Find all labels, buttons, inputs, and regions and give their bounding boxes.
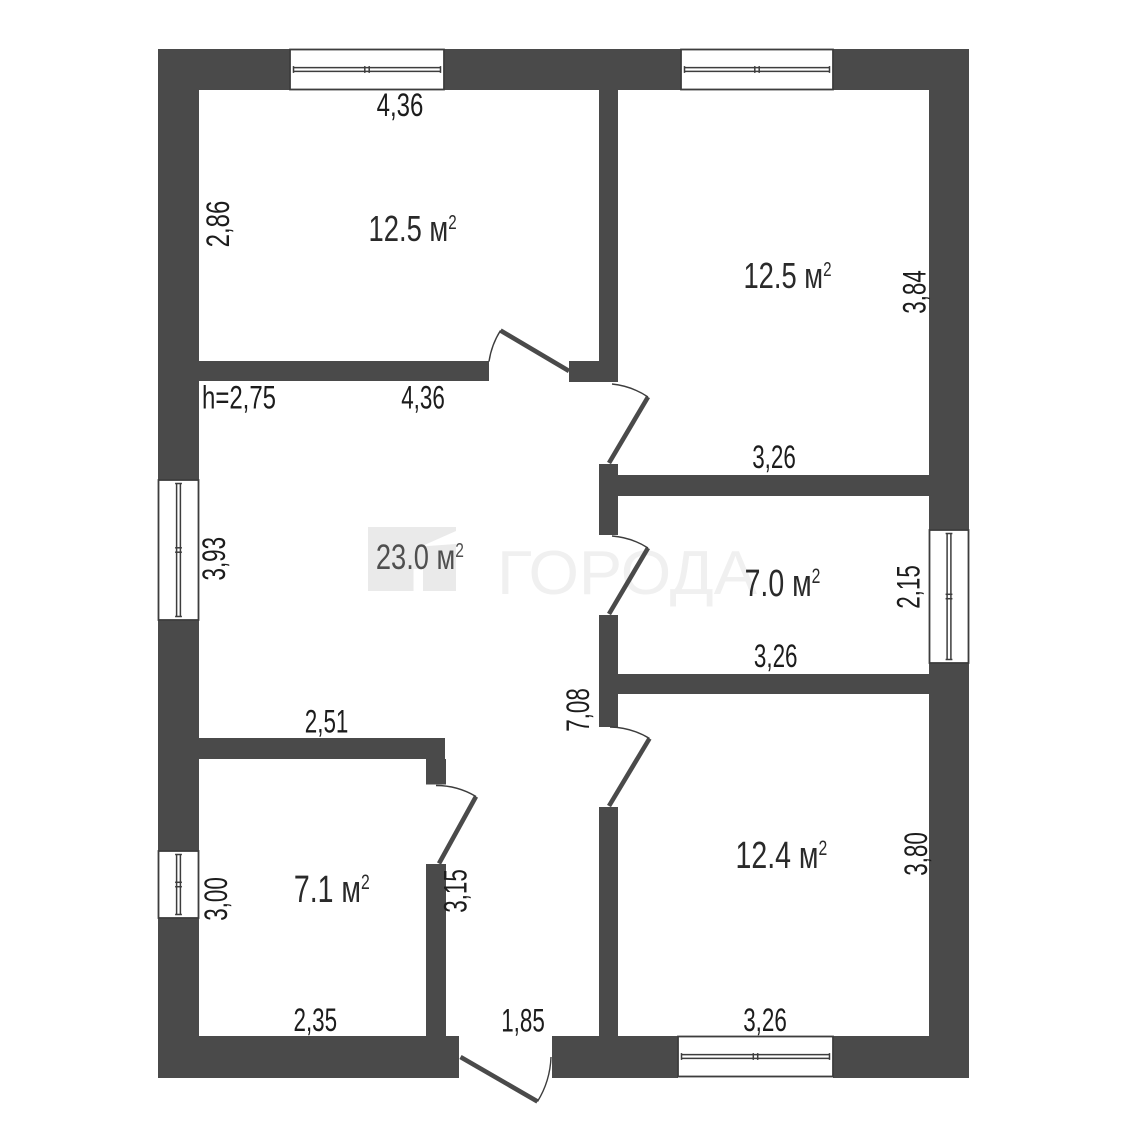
svg-text:12.4 м2: 12.4 м2 — [736, 835, 828, 877]
svg-text:3,26: 3,26 — [754, 638, 798, 674]
svg-text:23.0 м2: 23.0 м2 — [376, 538, 464, 577]
svg-text:7.0 м2: 7.0 м2 — [745, 563, 821, 605]
svg-text:3,93: 3,93 — [196, 537, 232, 581]
svg-text:3,15: 3,15 — [438, 869, 474, 913]
svg-text:7,08: 7,08 — [560, 688, 596, 732]
svg-text:ГОРОДА: ГОРОДА — [497, 539, 758, 608]
svg-text:1,85: 1,85 — [501, 1003, 545, 1039]
svg-text:2,51: 2,51 — [305, 704, 349, 740]
svg-text:2,86: 2,86 — [200, 201, 236, 248]
svg-text:12.5 м2: 12.5 м2 — [743, 255, 831, 296]
svg-text:3,80: 3,80 — [898, 832, 934, 876]
svg-text:12.5 м2: 12.5 м2 — [369, 208, 457, 249]
svg-text:2,15: 2,15 — [891, 565, 927, 609]
svg-text:3,84: 3,84 — [897, 270, 933, 314]
svg-text:3,00: 3,00 — [198, 877, 234, 921]
svg-text:3,26: 3,26 — [743, 1002, 787, 1038]
svg-text:4,36: 4,36 — [377, 87, 424, 123]
svg-text:4,36: 4,36 — [401, 380, 445, 416]
svg-text:3,26: 3,26 — [752, 439, 796, 475]
svg-text:7.1 м2: 7.1 м2 — [294, 869, 370, 911]
svg-text:2,35: 2,35 — [294, 1002, 338, 1038]
svg-text:h=2,75: h=2,75 — [202, 379, 276, 415]
